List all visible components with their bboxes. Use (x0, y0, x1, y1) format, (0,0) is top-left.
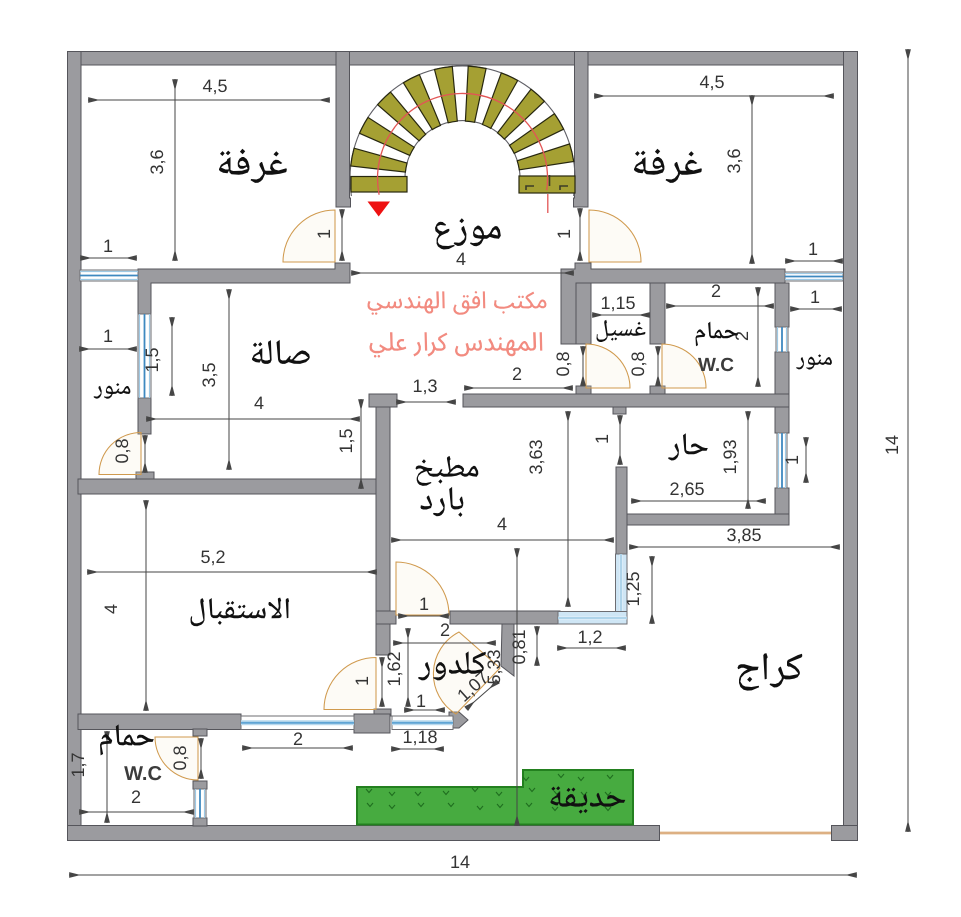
svg-text:0,8: 0,8 (628, 351, 648, 376)
svg-text:1,5: 1,5 (142, 347, 162, 372)
svg-text:3,5: 3,5 (199, 362, 219, 387)
svg-text:1: 1 (103, 236, 113, 256)
svg-text:14: 14 (882, 435, 902, 455)
svg-text:4: 4 (254, 393, 264, 413)
svg-text:3,6: 3,6 (724, 148, 744, 173)
svg-text:1: 1 (782, 455, 802, 465)
svg-text:1,93: 1,93 (720, 439, 740, 474)
svg-text:0,8: 0,8 (553, 351, 573, 376)
svg-text:1: 1 (314, 229, 334, 239)
svg-text:5,33: 5,33 (484, 649, 504, 684)
svg-text:4: 4 (456, 249, 466, 269)
svg-text:1: 1 (103, 326, 113, 346)
svg-text:0,8: 0,8 (112, 438, 132, 463)
svg-text:3,85: 3,85 (726, 525, 761, 545)
svg-text:4: 4 (101, 604, 121, 614)
svg-text:1,3: 1,3 (412, 376, 437, 396)
svg-text:2: 2 (512, 364, 522, 384)
svg-text:1,7: 1,7 (68, 752, 88, 777)
svg-text:2: 2 (131, 787, 141, 807)
svg-text:1,15: 1,15 (600, 293, 635, 313)
svg-text:1: 1 (352, 676, 372, 686)
svg-text:1,18: 1,18 (402, 727, 437, 747)
svg-text:1: 1 (810, 287, 820, 307)
svg-text:3,6: 3,6 (147, 149, 167, 174)
svg-text:4: 4 (497, 514, 507, 534)
svg-text:1,25: 1,25 (623, 571, 643, 606)
svg-text:4,5: 4,5 (202, 76, 227, 96)
svg-text:3,63: 3,63 (526, 439, 546, 474)
svg-text:2,65: 2,65 (669, 479, 704, 499)
svg-text:14: 14 (450, 852, 470, 872)
svg-text:4,5: 4,5 (699, 72, 724, 92)
svg-text:W.C: W.C (124, 763, 162, 785)
svg-text:2: 2 (732, 331, 752, 341)
svg-text:1: 1 (592, 434, 612, 444)
svg-text:1,62: 1,62 (384, 651, 404, 686)
svg-text:2: 2 (711, 281, 721, 301)
svg-text:1: 1 (419, 594, 429, 614)
svg-text:0,8: 0,8 (170, 745, 190, 770)
svg-text:1: 1 (416, 691, 426, 711)
svg-text:2: 2 (293, 729, 303, 749)
svg-text:5,2: 5,2 (200, 547, 225, 567)
svg-text:2: 2 (440, 620, 450, 640)
svg-text:1: 1 (554, 229, 574, 239)
svg-text:1,5: 1,5 (336, 428, 356, 453)
svg-text:W.C: W.C (698, 355, 734, 376)
svg-text:1: 1 (808, 239, 818, 259)
svg-text:0,81: 0,81 (509, 629, 529, 664)
svg-text:1,2: 1,2 (577, 627, 602, 647)
